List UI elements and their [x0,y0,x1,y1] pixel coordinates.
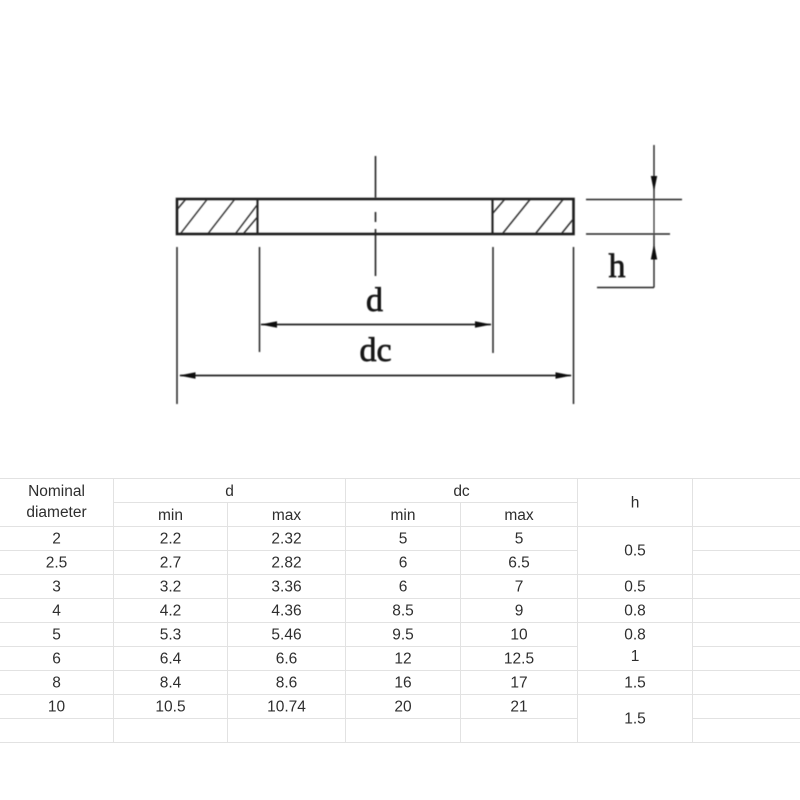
svg-text:2.5: 2.5 [46,555,68,572]
svg-text:6: 6 [399,579,408,596]
svg-text:3: 3 [52,579,61,596]
svg-text:20: 20 [394,699,412,716]
svg-text:6.4: 6.4 [160,651,182,668]
svg-text:d: d [225,483,234,500]
svg-text:max: max [504,507,534,524]
svg-text:1.5: 1.5 [624,675,646,692]
svg-text:dc: dc [359,332,391,369]
svg-text:9.5: 9.5 [392,627,414,644]
svg-text:0.8: 0.8 [624,627,646,644]
svg-text:5: 5 [399,531,408,548]
svg-text:21: 21 [510,699,527,716]
svg-text:4.2: 4.2 [160,603,182,620]
svg-text:17: 17 [510,675,527,692]
svg-text:2.32: 2.32 [271,531,301,548]
svg-text:dc: dc [453,483,470,500]
svg-text:diameter: diameter [26,504,86,521]
svg-text:6.6: 6.6 [276,651,298,668]
svg-text:2.7: 2.7 [160,555,182,572]
svg-text:8: 8 [52,675,61,692]
svg-text:8.5: 8.5 [392,603,414,620]
svg-text:2.82: 2.82 [271,555,301,572]
svg-text:h: h [609,248,626,285]
svg-text:min: min [158,507,183,524]
svg-text:6.5: 6.5 [508,555,530,572]
svg-text:5: 5 [515,531,524,548]
svg-text:0.8: 0.8 [624,603,646,620]
svg-text:3.36: 3.36 [271,579,301,596]
svg-text:6: 6 [52,651,61,668]
svg-text:8.4: 8.4 [160,675,182,692]
svg-text:1: 1 [631,648,640,665]
svg-text:3.2: 3.2 [160,579,182,596]
svg-text:10: 10 [48,699,66,716]
svg-text:10.74: 10.74 [267,699,306,716]
svg-text:10: 10 [510,627,528,644]
svg-text:7: 7 [515,579,524,596]
svg-text:10.5: 10.5 [155,699,185,716]
svg-text:d: d [366,282,383,319]
svg-text:4.36: 4.36 [271,603,301,620]
svg-text:5.46: 5.46 [271,627,301,644]
svg-text:6: 6 [399,555,408,572]
svg-text:4: 4 [52,603,61,620]
svg-text:h: h [631,495,640,512]
svg-text:0.5: 0.5 [624,579,646,596]
svg-text:max: max [272,507,302,524]
svg-text:8.6: 8.6 [276,675,298,692]
svg-text:5.3: 5.3 [160,627,182,644]
svg-text:12.5: 12.5 [504,651,534,668]
svg-text:16: 16 [394,675,411,692]
svg-text:9: 9 [515,603,524,620]
svg-text:min: min [391,507,416,524]
svg-text:0.5: 0.5 [624,543,646,560]
svg-text:2: 2 [52,531,61,548]
svg-text:2.2: 2.2 [160,531,182,548]
svg-text:Nominal: Nominal [28,483,85,500]
svg-text:12: 12 [394,651,411,668]
svg-text:5: 5 [52,627,61,644]
svg-text:1.5: 1.5 [624,711,646,728]
